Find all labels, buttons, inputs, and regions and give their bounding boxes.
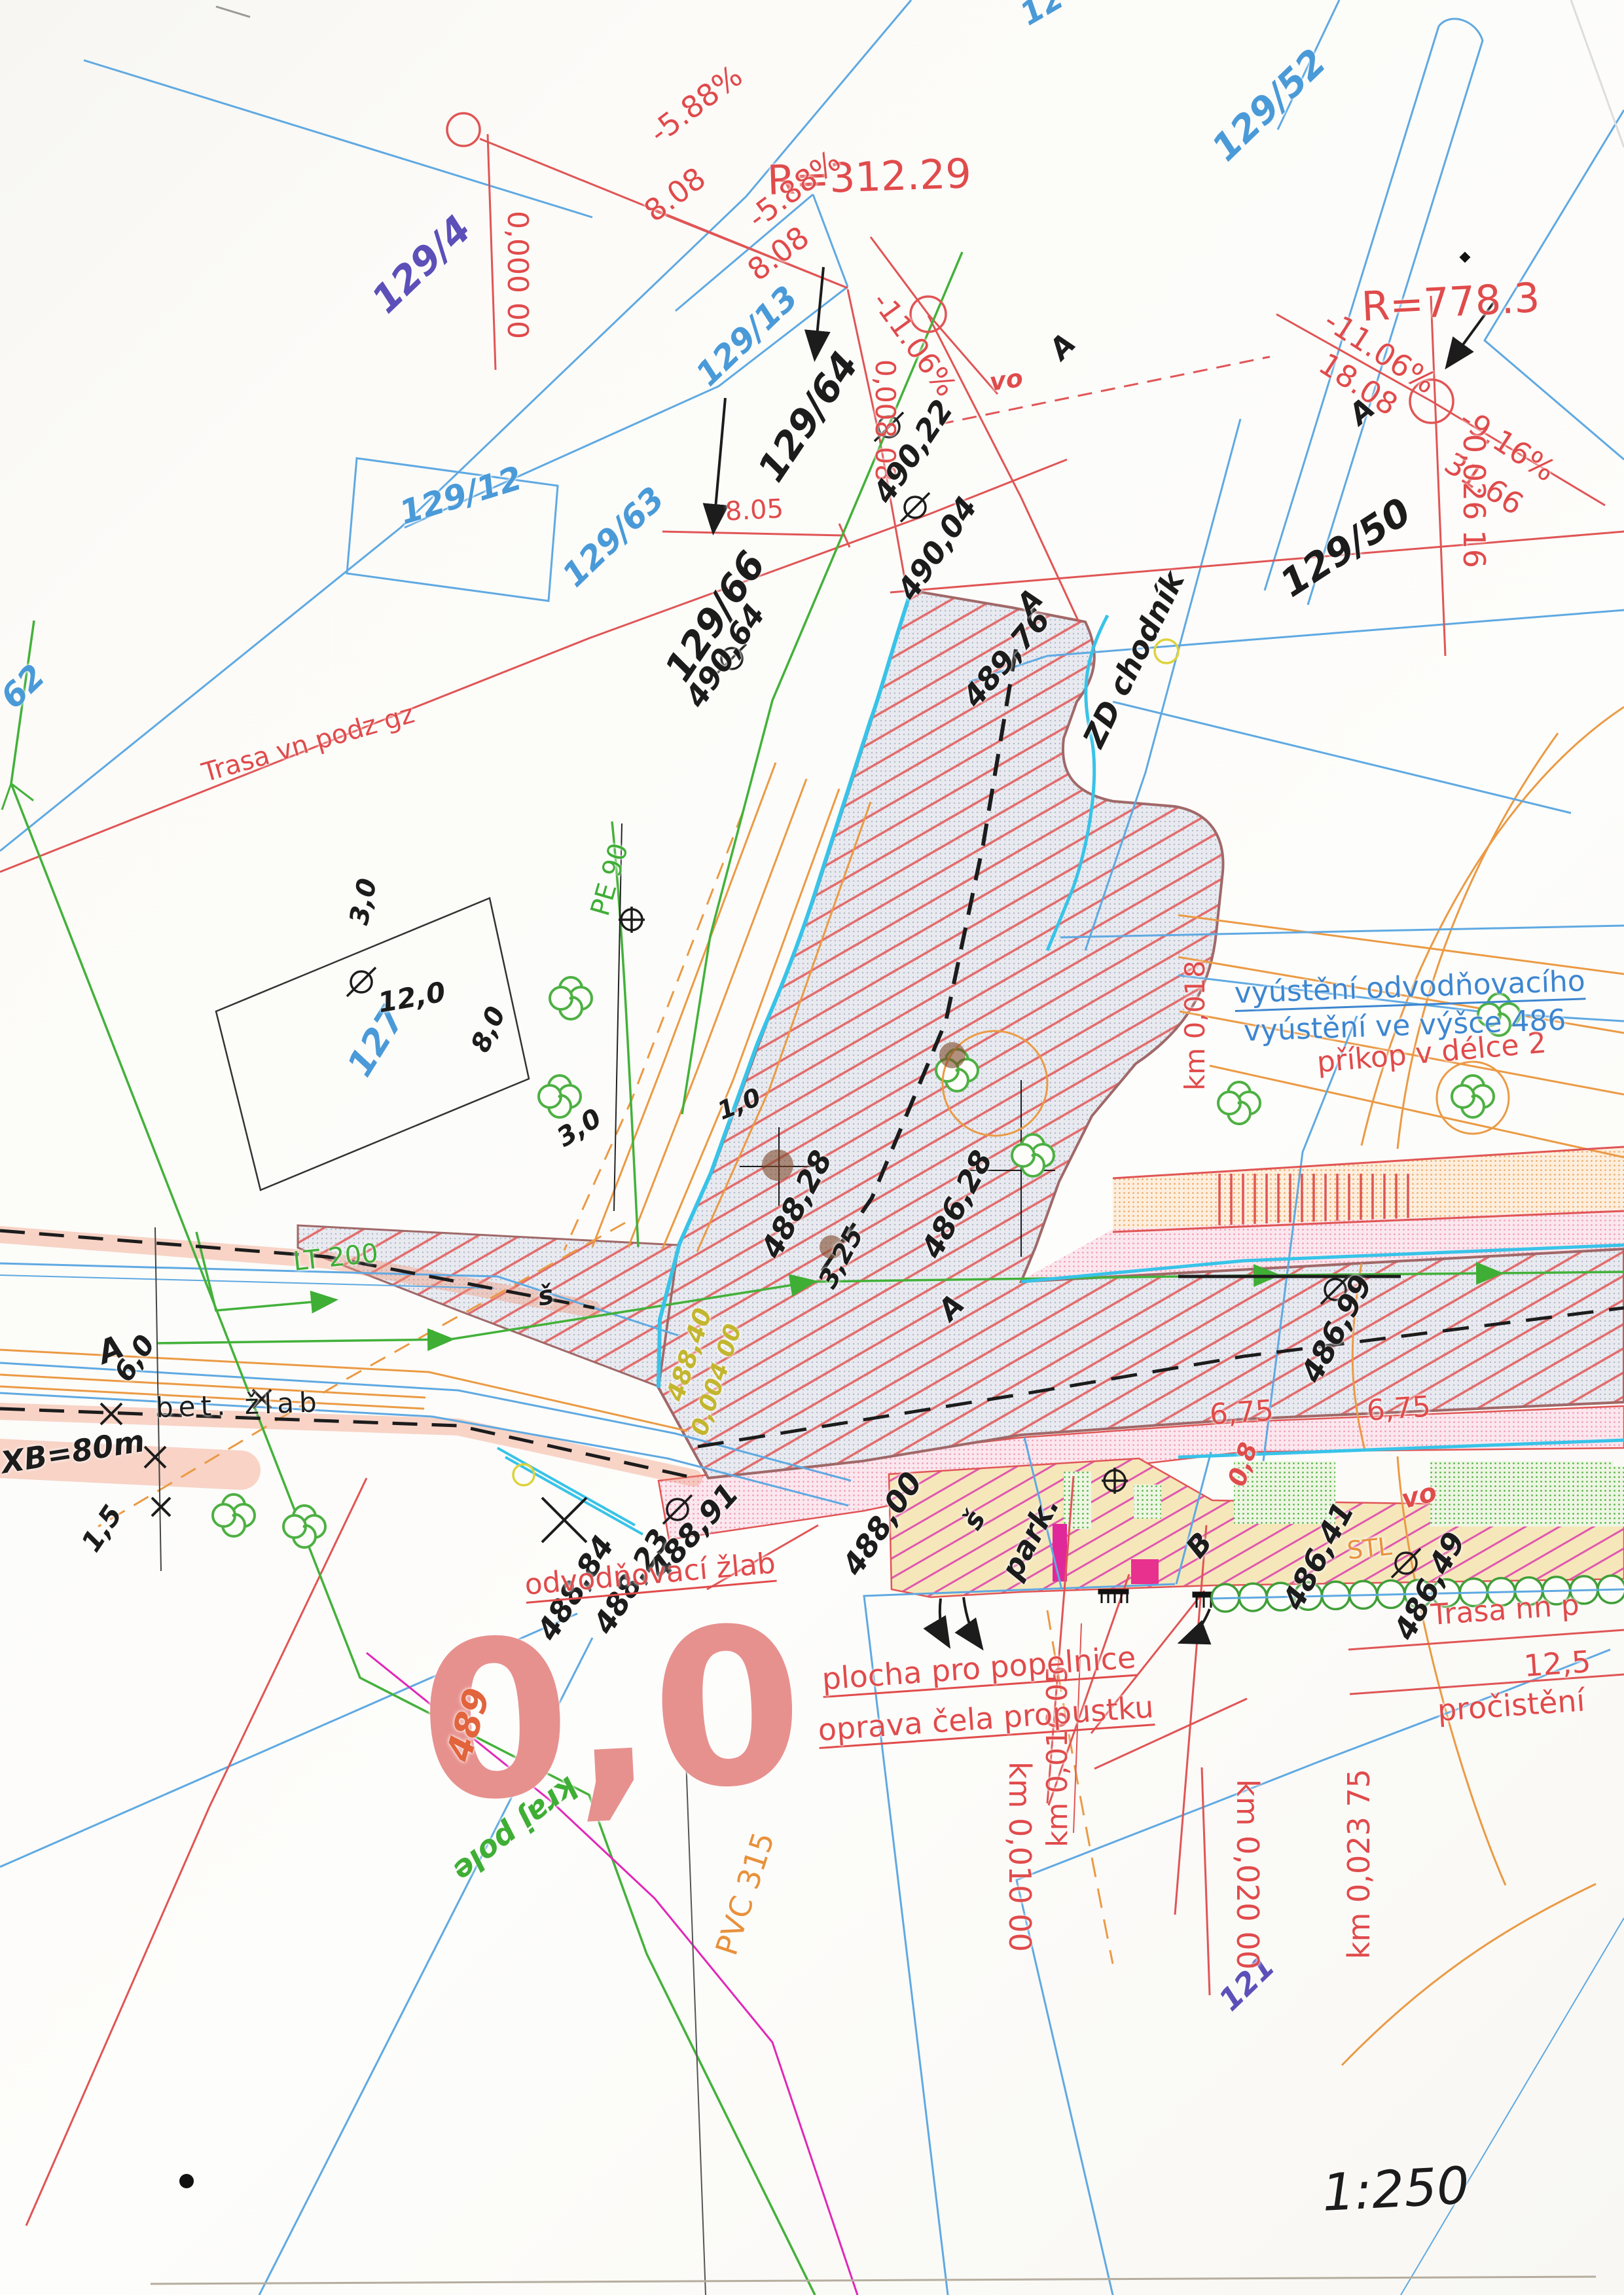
soil-stain — [762, 1149, 793, 1181]
x-mark-icon — [542, 1498, 586, 1542]
soil-stain — [939, 1042, 965, 1068]
tree-icon — [1218, 1082, 1260, 1124]
tree-icon — [539, 1075, 581, 1117]
diamond-mark-icon — [1460, 252, 1471, 263]
survey-point-icon — [717, 644, 746, 673]
survey-point-icon — [901, 493, 929, 522]
scale-label: 1:250 — [1321, 2160, 1471, 2219]
survey-point-icon — [347, 967, 376, 996]
tree-icon — [213, 1494, 255, 1536]
tree-icon — [283, 1506, 325, 1547]
survey-point-icon — [875, 412, 903, 441]
survey-dot-icon — [179, 2174, 194, 2188]
scanned-site-plan-sheet: 129/4129/52129/12129/13129/63129/64129/6… — [0, 0, 1624, 2295]
tree-icon — [1478, 994, 1520, 1036]
survey-cross-point-icon — [619, 907, 645, 933]
soil-stain — [820, 1235, 843, 1259]
curve-tangent-circle-icon — [447, 113, 480, 146]
tree-icon — [1452, 1075, 1494, 1117]
yellow-marker-circle-icon — [1155, 640, 1178, 663]
x-mark-icon — [152, 1498, 170, 1516]
utility-line-magenta — [367, 1653, 857, 2295]
site-plan-drawing — [0, 0, 1624, 2295]
pencil-rectangle-127 — [216, 898, 529, 1190]
sidewalk-hatch-area — [298, 590, 1624, 1478]
tree-icon — [550, 977, 592, 1019]
